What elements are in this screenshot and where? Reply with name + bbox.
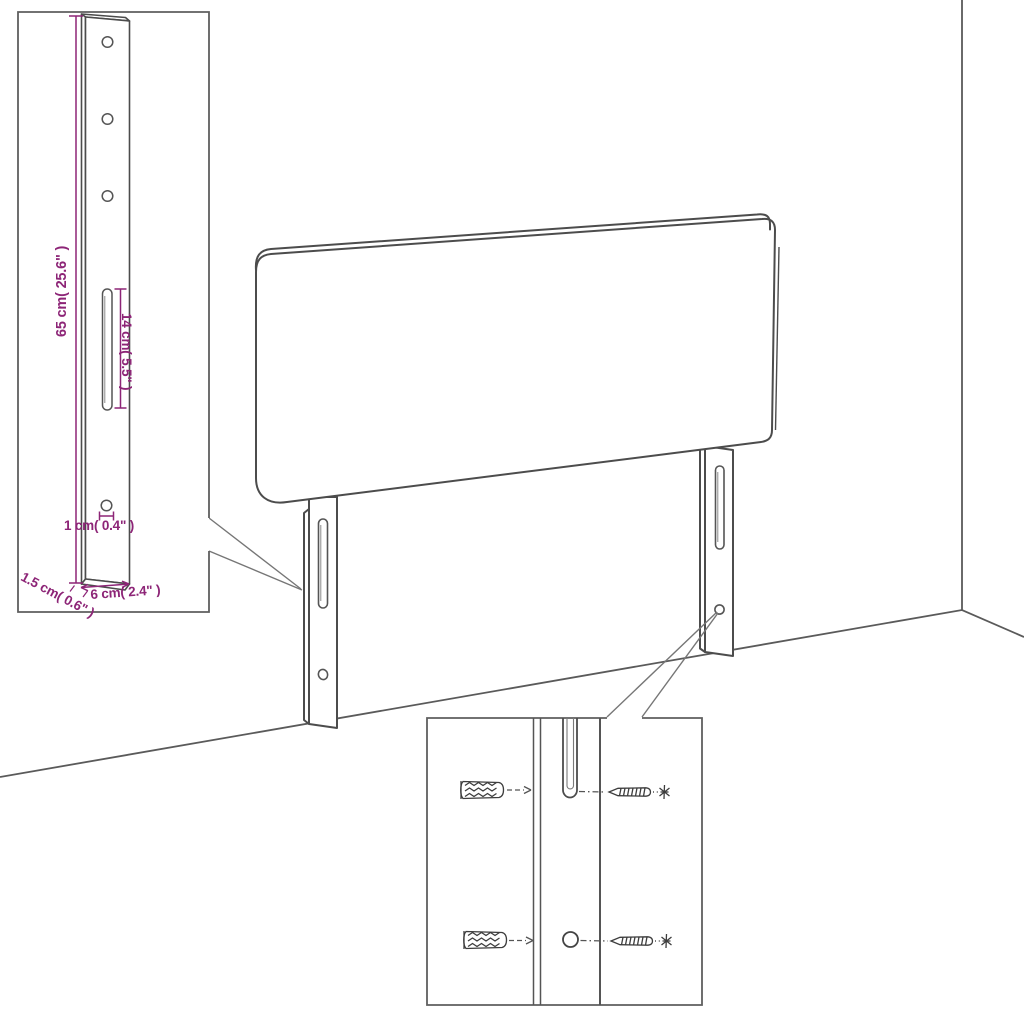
- bracket-hole-icon: [102, 37, 113, 48]
- dim-label-bracket-height: 65 cm( 25.6" ): [55, 246, 69, 337]
- dim-label-slot-length: 14 cm( 5.5" ): [119, 313, 133, 390]
- bracket-hole-icon: [102, 191, 113, 202]
- line-art: [0, 0, 1024, 1024]
- bracket-hole-icon: [102, 114, 113, 125]
- bracket-slot-icon: [103, 289, 113, 410]
- callout-lines: [209, 518, 718, 717]
- inset-box: [427, 718, 702, 1005]
- bracket-hole-icon: [101, 500, 112, 511]
- dim-label-hole-diameter: 1 cm( 0.4" ): [64, 519, 134, 533]
- headboard-leg-right: [700, 446, 733, 656]
- leg-mounting-cutouts: [317, 466, 724, 681]
- inset-mounting-detail: [427, 718, 702, 1005]
- diagram-canvas: 65 cm( 25.6" ) 14 cm( 5.5" ) 1 cm( 0.4" …: [0, 0, 1024, 1024]
